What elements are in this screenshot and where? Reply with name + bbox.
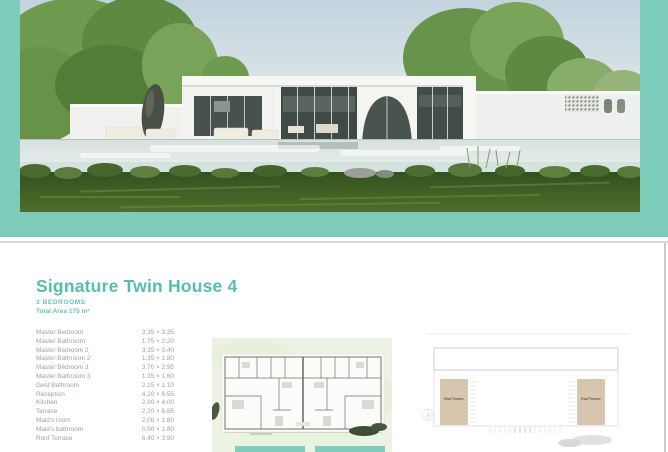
room-label: Master Bedroom 3 <box>36 364 89 373</box>
room-label: Roof Terrace <box>36 435 72 444</box>
room-dims: 2.15 × 1.10 <box>142 382 174 391</box>
room-label: Master Bedroom 2 <box>36 347 89 356</box>
bedrooms-label: 3 BEDROOMS <box>36 299 86 306</box>
card-right-border <box>664 243 666 452</box>
villa-render-scene <box>20 0 640 212</box>
room-label: Master Bathroom 3 <box>36 373 90 382</box>
room-label: Kitchen <box>36 399 57 408</box>
room-row: Master Bedroom 33.70 × 2.95 <box>36 364 174 373</box>
lawn <box>20 172 640 212</box>
room-row: Reception4.20 × 6.55 <box>36 391 174 400</box>
room-row: Maid's room2.00 × 1.80 <box>36 417 174 426</box>
room-label: Maid's room <box>36 417 71 426</box>
room-row: Terrace2.20 × 6.85 <box>36 408 174 417</box>
room-row: Master Bedroom 23.35 × 3.40 <box>36 347 174 356</box>
rock <box>376 170 394 178</box>
ground-floor-plan <box>212 338 392 452</box>
roof-plan: Roof Terrace Roof Terrace <box>420 330 664 452</box>
room-dims: 0.90 × 1.80 <box>142 426 174 435</box>
room-row: Master Bathroom 31.35 × 1.60 <box>36 373 174 382</box>
room-dims: 3.70 × 2.95 <box>142 364 174 373</box>
room-dims: 2.20 × 6.85 <box>142 408 174 417</box>
room-dims: 6.40 × 3.90 <box>142 435 174 444</box>
room-label: Maid's bathroom <box>36 426 83 435</box>
roof-deck-left: Roof Terrace <box>440 379 468 425</box>
room-dims: 1.35 × 1.80 <box>142 355 174 364</box>
roof-deck-right: Roof Terrace <box>577 379 605 425</box>
room-label: Terrace <box>36 408 57 417</box>
room-label: Master Bathroom 2 <box>36 355 90 364</box>
room-row: Maid's bathroom0.90 × 1.80 <box>36 426 174 435</box>
room-row: Master Bathroom1.75 × 2.20 <box>36 338 174 347</box>
page-title: Signature Twin House 4 <box>36 276 237 297</box>
room-dims: 3.35 × 3.40 <box>142 347 174 356</box>
room-row: Roof Terrace6.40 × 3.90 <box>36 435 174 444</box>
roof-outline <box>434 348 618 370</box>
room-row: Master Bathroom 21.35 × 1.80 <box>36 355 174 364</box>
villa-photo <box>20 0 640 212</box>
roof-terrace-label: Roof Terrace <box>581 397 601 401</box>
room-row: Kitchen2.90 × 4.00 <box>36 399 174 408</box>
rock <box>344 168 376 178</box>
room-label: Master Bathroom <box>36 338 85 347</box>
room-label: Gest Bathroom <box>36 382 79 391</box>
hero-banner <box>0 0 668 237</box>
room-row: Gest Bathroom2.15 × 1.10 <box>36 382 174 391</box>
room-dims: 3.35 × 3.35 <box>142 329 174 338</box>
room-label: Reception <box>36 391 65 400</box>
total-area-label: Total Area 175 m² <box>36 308 89 315</box>
room-label: Master Bedroom <box>36 329 83 338</box>
room-dims: 1.35 × 1.60 <box>142 373 174 382</box>
room-dims: 2.00 × 1.80 <box>142 417 174 426</box>
roof-terrace-label: Roof Terrace <box>444 397 464 401</box>
right-perimeter-wall <box>473 91 640 142</box>
room-row: Master Bedroom3.35 × 3.35 <box>36 329 174 338</box>
room-dims: 2.90 × 4.00 <box>142 399 174 408</box>
room-dims: 4.20 × 6.55 <box>142 391 174 400</box>
room-dimensions-list: Master Bedroom3.35 × 3.35 Master Bathroo… <box>36 329 174 443</box>
room-dims: 1.75 × 2.20 <box>142 338 174 347</box>
